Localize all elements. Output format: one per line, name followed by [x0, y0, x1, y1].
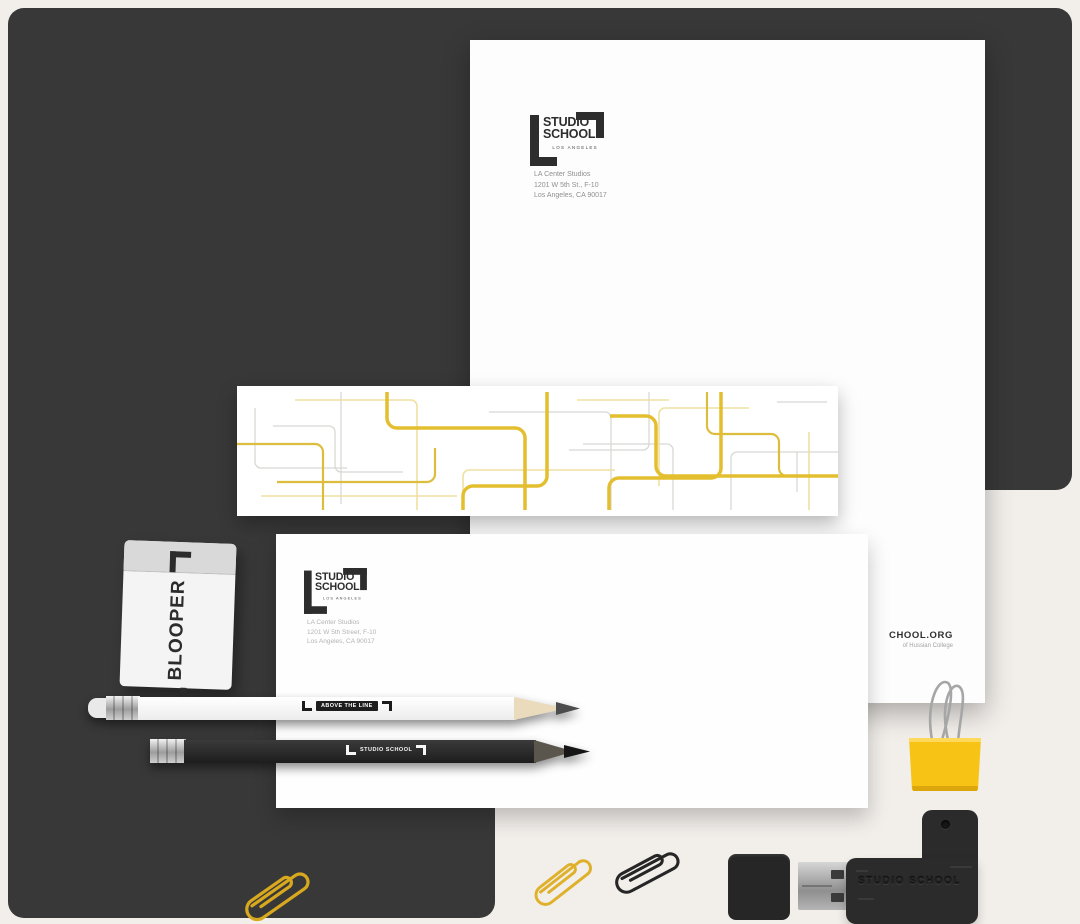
corner-bracket-right-icon	[382, 701, 392, 711]
address-line: 1201 W 5th St., F-10	[534, 181, 607, 192]
pencil-white-label: ABOVE THE LINE	[302, 701, 392, 711]
pencil-white-label-text: ABOVE THE LINE	[316, 701, 378, 711]
pencil-lead-tip	[564, 745, 590, 758]
usb-connector	[798, 862, 850, 910]
brand-city: LOS ANGELES	[318, 596, 362, 600]
letterhead-footer: CHOOL.ORG of Hussian College	[889, 630, 953, 649]
brand-line2: SCHOOL	[315, 582, 359, 592]
stationery-mockup: STUDIO SCHOOL LOS ANGELES LA Center Stud…	[0, 0, 1080, 924]
brand-logo: STUDIO SCHOOL LOS ANGELES	[304, 568, 367, 609]
pencil-black-label-text: STUDIO SCHOOL	[360, 747, 412, 753]
brand-wordmark: STUDIO SCHOOL	[543, 117, 595, 140]
address-line: 1201 W 5th Street, F-10	[307, 628, 376, 638]
binder-clip-graphic	[900, 676, 990, 794]
address-line: LA Center Studios	[534, 170, 607, 181]
brand-logo: STUDIO SCHOOL LOS ANGELES	[530, 112, 604, 160]
envelope-front: STUDIO SCHOOL LOS ANGELES LA Center Stud…	[276, 534, 868, 808]
address-line: Los Angeles, CA 90017	[307, 637, 376, 647]
pencil-ferrule	[150, 739, 186, 763]
brand-city: LOS ANGELES	[546, 145, 598, 150]
letterhead-address: LA Center Studios 1201 W 5th St., F-10 L…	[534, 170, 607, 202]
corner-bracket-left-icon	[346, 745, 356, 755]
paperclip-black	[600, 838, 692, 907]
binder-clip	[900, 676, 990, 794]
pencil-white: ABOVE THE LINE	[88, 695, 584, 723]
pencil-black: STUDIO SCHOOL	[146, 738, 590, 766]
envelope-address: LA Center Studios 1201 W 5th Street, F-1…	[307, 618, 376, 647]
address-line: LA Center Studios	[307, 618, 376, 628]
usb-embossed-label: STUDIO SCHOOL	[858, 876, 961, 887]
corner-bracket-right-icon	[169, 551, 191, 573]
eraser: BLOOPER	[119, 540, 236, 690]
brand-line2: SCHOOL	[543, 129, 595, 141]
paperclip-yellow-center	[520, 845, 604, 920]
tagline-text: of Hussian College	[889, 643, 953, 649]
usb-cap	[728, 854, 790, 920]
website-text: CHOOL.ORG	[889, 630, 953, 641]
circuit-line-pattern-graphic	[237, 392, 838, 510]
pencil-black-label: STUDIO SCHOOL	[346, 745, 426, 755]
eraser-label-text: BLOOPER	[165, 579, 191, 681]
pencil-ferrule	[106, 696, 140, 720]
pencil-lead-tip	[556, 702, 580, 715]
address-line: Los Angeles, CA 90017	[534, 191, 607, 202]
corner-bracket-left-icon	[302, 701, 312, 711]
envelope-back-pattern	[237, 386, 838, 516]
brand-wordmark: STUDIO SCHOOL	[315, 572, 359, 592]
corner-bracket-right-icon	[416, 745, 426, 755]
eraser-label: BLOOPER	[164, 551, 191, 709]
usb-lanyard-hole	[941, 820, 950, 829]
